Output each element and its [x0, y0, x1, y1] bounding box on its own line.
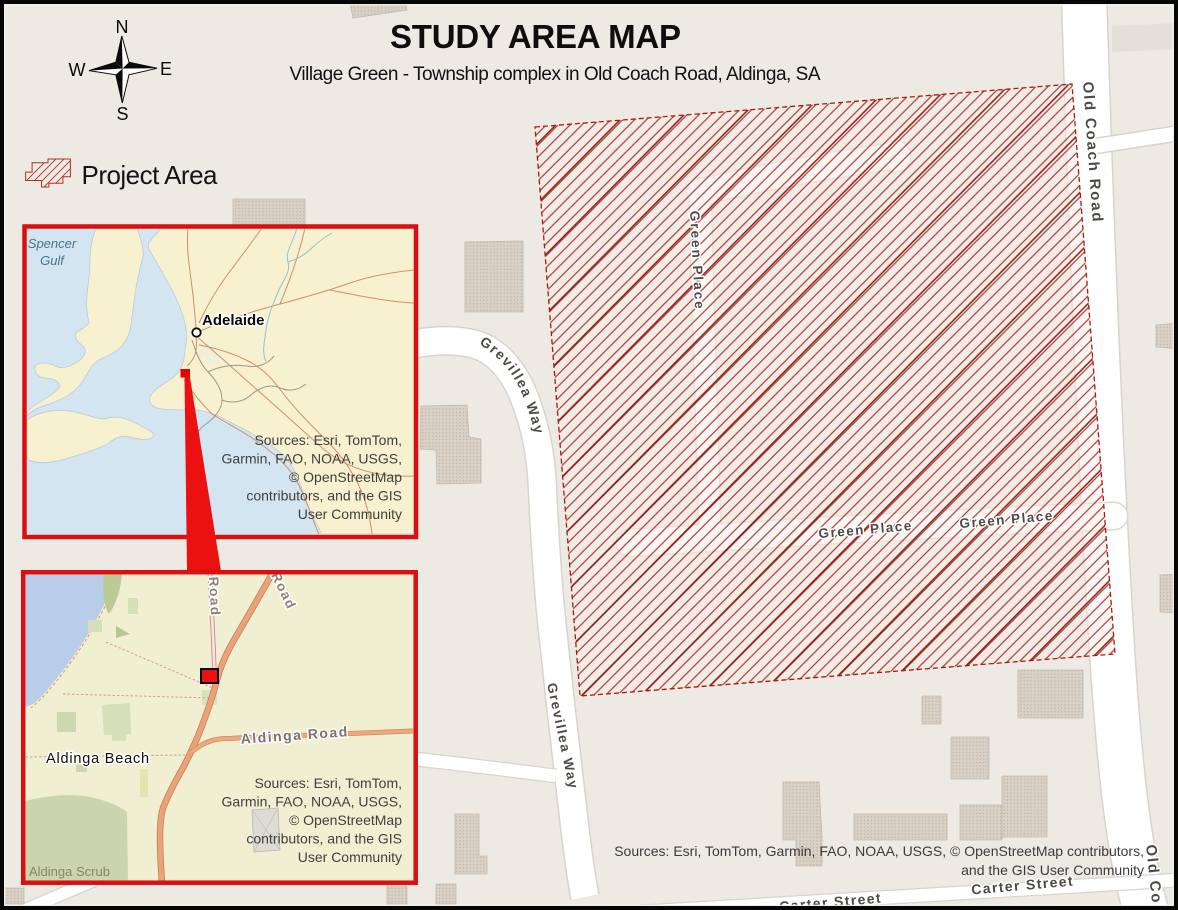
svg-text:Garmin, FAO, NOAA, USGS,: Garmin, FAO, NOAA, USGS, — [222, 451, 402, 467]
svg-text:contributors, and the GIS: contributors, and the GIS — [246, 488, 402, 504]
svg-text:W: W — [69, 60, 86, 80]
svg-text:E: E — [160, 59, 172, 79]
svg-text:STUDY AREA MAP: STUDY AREA MAP — [390, 18, 682, 55]
svg-text:contributors, and the GIS: contributors, and the GIS — [246, 831, 402, 847]
svg-text:© OpenStreetMap: © OpenStreetMap — [289, 469, 402, 485]
svg-text:Village Green - Township compl: Village Green - Township complex in Old … — [290, 64, 821, 85]
svg-text:and the GIS User Community: and the GIS User Community — [961, 862, 1144, 878]
svg-text:N: N — [116, 17, 129, 37]
svg-text:User Community: User Community — [298, 849, 402, 865]
svg-text:© OpenStreetMap: © OpenStreetMap — [289, 812, 402, 828]
svg-text:Project Area: Project Area — [82, 160, 219, 190]
svg-text:Aldinga Beach: Aldinga Beach — [46, 751, 150, 767]
svg-text:Adelaide: Adelaide — [202, 312, 265, 329]
svg-text:Road: Road — [206, 576, 223, 616]
svg-text:Spencer: Spencer — [28, 236, 77, 251]
svg-text:Sources: Esri, TomTom, Garmin,: Sources: Esri, TomTom, Garmin, FAO, NOAA… — [614, 843, 1144, 859]
svg-text:Sources: Esri, TomTom,: Sources: Esri, TomTom, — [254, 432, 402, 448]
svg-text:Gulf: Gulf — [40, 253, 65, 268]
svg-text:S: S — [116, 104, 128, 124]
svg-text:User Community: User Community — [298, 506, 402, 522]
svg-text:Garmin, FAO, NOAA, USGS,: Garmin, FAO, NOAA, USGS, — [222, 794, 402, 810]
svg-text:Aldinga Scrub: Aldinga Scrub — [29, 864, 110, 879]
svg-text:Sources: Esri, TomTom,: Sources: Esri, TomTom, — [254, 775, 402, 791]
